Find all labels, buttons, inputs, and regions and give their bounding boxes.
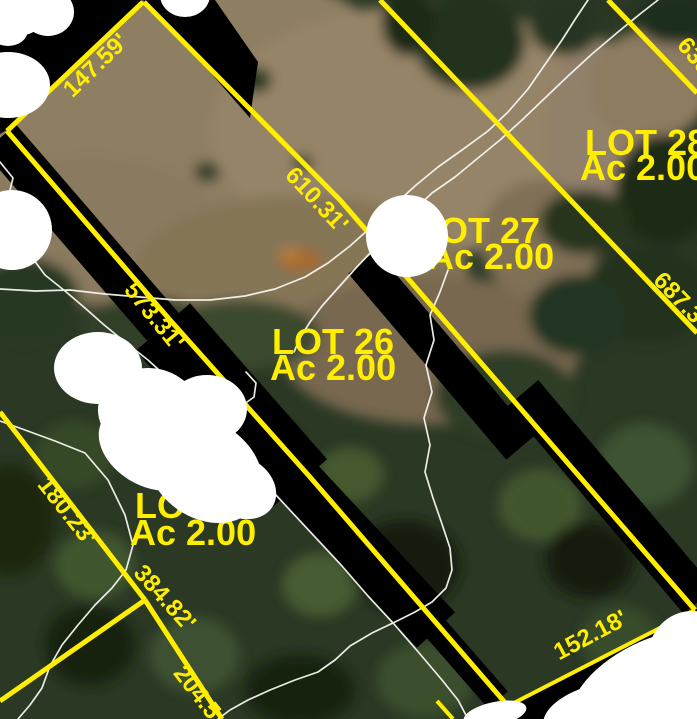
lot-label-26: LOT 26 Ac 2.00 bbox=[270, 321, 396, 388]
lot-acreage: Ac 2.00 bbox=[270, 347, 396, 388]
aerial-trees bbox=[194, 162, 220, 182]
lot-label-28: LOT 28 Ac 2.00 bbox=[580, 122, 697, 188]
lot-acreage: Ac 2.00 bbox=[580, 147, 697, 188]
dirt-patch bbox=[281, 248, 299, 260]
aerial-trees bbox=[529, 275, 625, 355]
map-viewport[interactable]: 147.59' 610.31' 573.31' 180.23' 384.82' … bbox=[0, 0, 697, 719]
plat-map: 147.59' 610.31' 573.31' 180.23' 384.82' … bbox=[0, 0, 697, 719]
redaction-blob bbox=[366, 195, 448, 277]
forest-crown bbox=[55, 531, 135, 599]
